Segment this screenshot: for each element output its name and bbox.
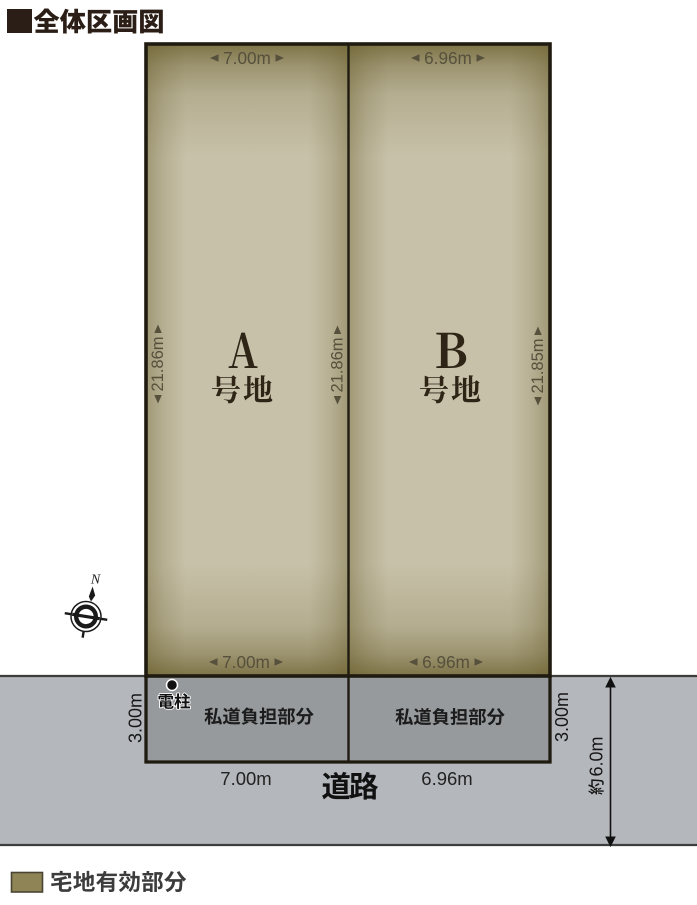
svg-text:7.00m: 7.00m [220, 768, 271, 789]
svg-text:6.0m: 6.0m [587, 736, 607, 776]
svg-text:7.00m: 7.00m [222, 652, 270, 672]
svg-text:7.00m: 7.00m [223, 48, 271, 68]
svg-text:3.00m: 3.00m [126, 693, 146, 743]
svg-text:6.96m: 6.96m [421, 768, 472, 789]
svg-text:3.00m: 3.00m [552, 692, 572, 742]
svg-text:21.86m: 21.86m [329, 337, 347, 392]
svg-text:21.85m: 21.85m [529, 338, 547, 393]
svg-text:6.96m: 6.96m [422, 652, 470, 672]
svg-text:21.86m: 21.86m [149, 336, 167, 391]
svg-text:N: N [90, 573, 101, 588]
svg-text:6.96m: 6.96m [424, 48, 472, 68]
